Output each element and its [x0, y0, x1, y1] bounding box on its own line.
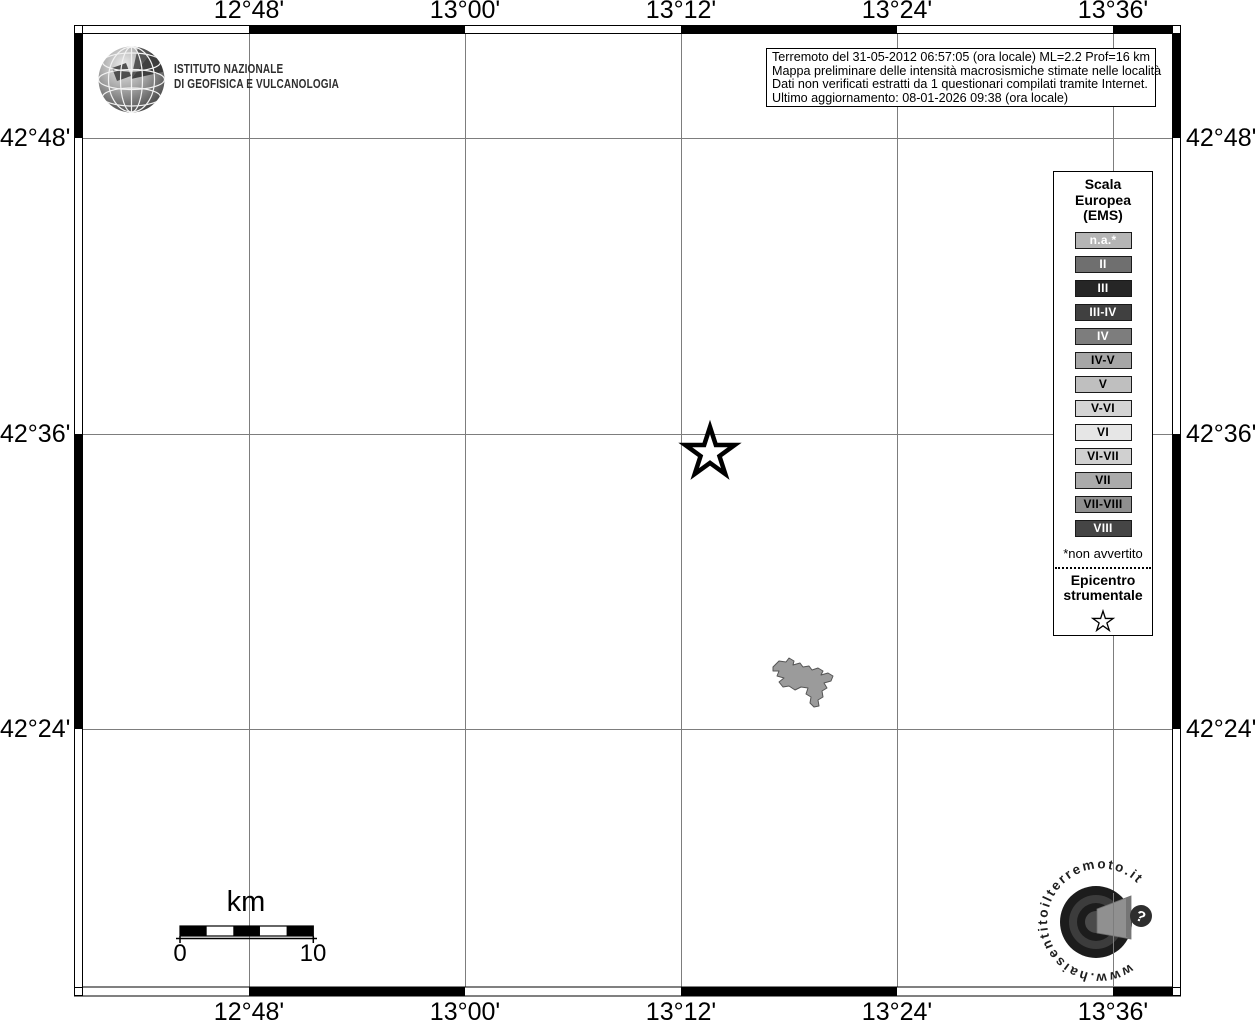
ingv-name-line2: DI GEOFISICA E VULCANOLOGIA	[174, 77, 339, 92]
lon-label-top: 13°12'	[621, 0, 741, 23]
lon-label-top: 13°24'	[837, 0, 957, 23]
info-line: Ultimo aggiornamento: 08-01-2026 09:38 (…	[772, 92, 1150, 106]
scalebar-unit-label: km	[196, 886, 296, 919]
scalebar-end-label: 10	[293, 940, 333, 968]
lat-label-right: 42°36'	[1186, 421, 1254, 447]
lon-label-bottom: 12°48'	[189, 999, 309, 1025]
ems-legend: Scala Europea (EMS) n.a.*IIIIIIII-IVIVIV…	[1053, 171, 1153, 636]
legend-item-VIII: VIII	[1075, 520, 1132, 537]
legend-item-IV-V: IV-V	[1075, 352, 1132, 369]
lon-label-bottom: 13°36'	[1053, 999, 1173, 1025]
lat-label-left: 42°24'	[0, 716, 68, 742]
lon-label-bottom: 13°12'	[621, 999, 741, 1025]
legend-footnote: *non avvertito	[1063, 546, 1143, 561]
hsit-logo: ? www.haisentitoilterremoto.it	[1035, 856, 1152, 987]
legend-item-n.a.*: n.a.*	[1075, 232, 1132, 249]
ingv-name-line1: ISTITUTO NAZIONALE	[174, 62, 339, 77]
legend-item-V: V	[1075, 376, 1132, 393]
legend-item-II: II	[1075, 256, 1132, 273]
info-line: Dati non verificati estratti da 1 questi…	[772, 78, 1150, 92]
legend-item-III: III	[1075, 280, 1132, 297]
lat-label-right: 42°48'	[1186, 125, 1254, 151]
legend-item-IV: IV	[1075, 328, 1132, 345]
lon-label-bottom: 13°00'	[405, 999, 525, 1025]
earthquake-info-box: Terremoto del 31-05-2012 06:57:05 (ora l…	[766, 48, 1156, 107]
legend-item-VII: VII	[1075, 472, 1132, 489]
info-line: Mappa preliminare delle intensità macros…	[772, 65, 1150, 79]
legend-title: Scala Europea (EMS)	[1075, 177, 1131, 224]
legend-item-VI-VII: VI-VII	[1075, 448, 1132, 465]
lon-label-top: 13°00'	[405, 0, 525, 23]
legend-item-V-VI: V-VI	[1075, 400, 1132, 417]
lat-label-left: 42°36'	[0, 421, 68, 447]
lat-label-right: 42°24'	[1186, 716, 1254, 742]
map-frame	[74, 25, 1181, 996]
lon-label-bottom: 13°24'	[837, 999, 957, 1025]
land-polygon	[773, 658, 833, 707]
lat-label-left: 42°48'	[0, 125, 68, 151]
legend-intensity-scale: n.a.*IIIIIIII-IVIVIV-VVV-VIVIVI-VIIVIIVI…	[1075, 232, 1132, 544]
legend-item-III-IV: III-IV	[1075, 304, 1132, 321]
legend-epicenter-star-icon	[1088, 608, 1118, 636]
legend-item-VII-VIII: VII-VIII	[1075, 496, 1132, 513]
ingv-globe-logo	[99, 47, 165, 113]
legend-item-VI: VI	[1075, 424, 1132, 441]
scalebar-start-label: 0	[160, 940, 200, 968]
legend-epicenter-label: Epicentro strumentale	[1063, 573, 1142, 604]
intensity-map-page: { "axes": { "top": ["12°48'", "13°00'", …	[0, 0, 1255, 1024]
lon-label-top: 13°36'	[1053, 0, 1173, 23]
legend-divider	[1055, 567, 1151, 569]
lon-label-top: 12°48'	[189, 0, 309, 23]
info-line: Terremoto del 31-05-2012 06:57:05 (ora l…	[772, 51, 1150, 65]
ingv-wordmark: ISTITUTO NAZIONALE DI GEOFISICA E VULCAN…	[174, 62, 339, 92]
grid-lines	[82, 33, 1173, 987]
